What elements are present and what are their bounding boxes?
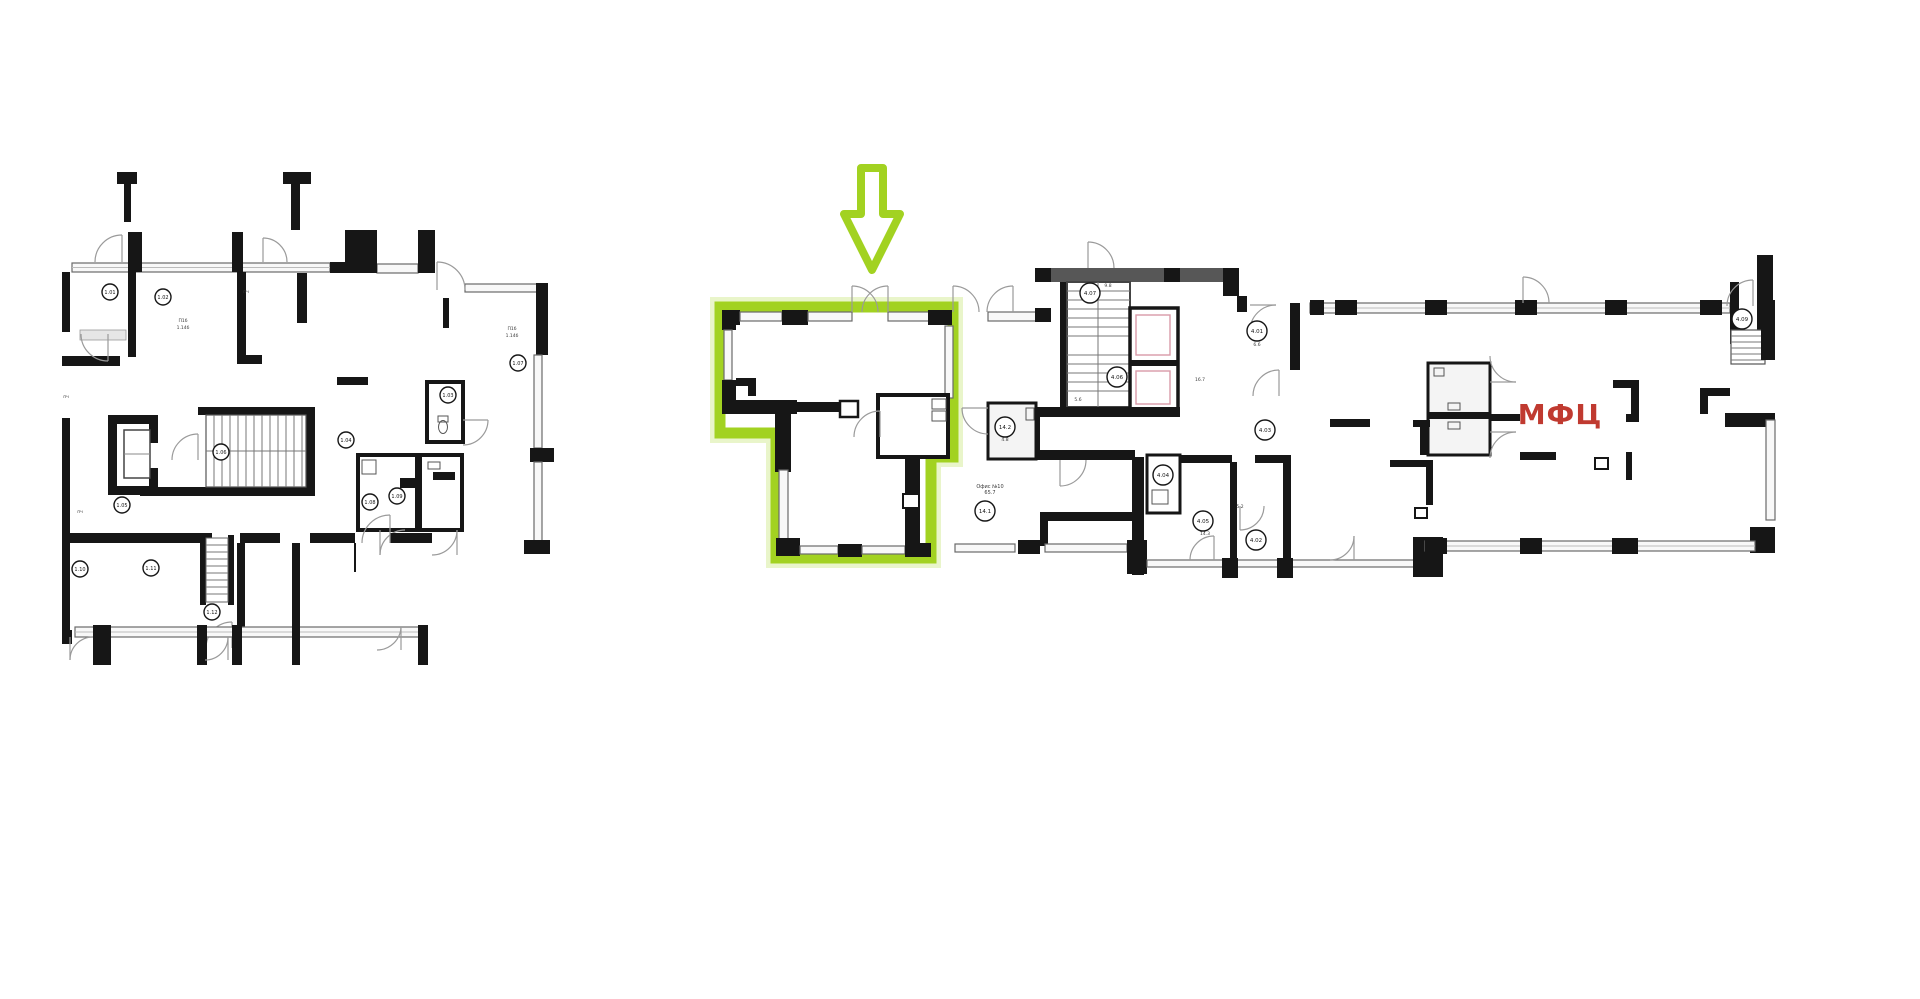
room-label-text: 4.01 xyxy=(1251,329,1263,335)
room-label-text: 4.03 xyxy=(1259,428,1272,434)
plan-note-text: 5.6 xyxy=(1074,397,1081,403)
elevator xyxy=(108,415,158,495)
room-label-text: 4.07 xyxy=(1084,291,1097,297)
room-label-text: 1.11 xyxy=(145,566,156,572)
room-label-text: 14.1 xyxy=(979,509,991,515)
down-arrow-icon xyxy=(844,168,900,270)
floor-plan-page: 1.011.021.031.041.051.061.071.081.091.10… xyxy=(0,0,1920,999)
plan-note-text: пч xyxy=(63,395,69,400)
plan-note-text: П1б xyxy=(178,318,187,324)
mfc-label: МФЦ xyxy=(1518,398,1603,431)
plan-note-text: 16.7 xyxy=(1195,377,1205,383)
room-label-text: 1.12 xyxy=(206,610,217,616)
floor-plan-canvas: 1.011.021.031.041.051.061.071.081.091.10… xyxy=(0,0,1920,999)
plan-note-text: пч xyxy=(77,510,83,515)
office-note-line2: 65.7 xyxy=(984,490,995,496)
room-label-text: 1.09 xyxy=(391,494,402,500)
room-label-text: 4.05 xyxy=(1197,519,1210,525)
plan-note-text: 4.8 xyxy=(1001,437,1008,443)
room-label-text: 1.05 xyxy=(116,503,127,509)
room-label-text: 1.01 xyxy=(104,290,115,296)
plan-note-text: пч xyxy=(243,290,249,295)
mfc-hall: МФЦ xyxy=(1310,255,1775,554)
room-label-text: 1.10 xyxy=(74,567,85,573)
room-label-text: 4.02 xyxy=(1250,538,1262,544)
mfc-office-rooms xyxy=(1390,356,1520,505)
plan-note-text: 6.6 xyxy=(1253,342,1260,348)
plan-note-text: 9.8 xyxy=(1104,283,1111,289)
room-label-text: 4.04 xyxy=(1157,473,1170,479)
room-label-text: 4.09 xyxy=(1736,317,1749,323)
room-label-text: 1.08 xyxy=(364,500,375,506)
right-floor-plan: МФЦ 4.074.064.014.0314.24.044.054.0214.1… xyxy=(720,168,1775,578)
plan-note-text: П1б xyxy=(507,326,516,332)
window-band-bottom xyxy=(75,627,425,637)
plan-note-text: 1.14б xyxy=(177,325,190,331)
plan-note-text: 14.3 xyxy=(1200,531,1210,537)
room-label-text: 1.04 xyxy=(340,438,351,444)
room-label-text: 1.07 xyxy=(512,361,523,367)
left-floor-plan: 1.011.021.031.041.051.061.071.081.091.10… xyxy=(62,172,554,665)
room-label-text: 1.06 xyxy=(215,450,226,456)
room-label-text: 1.03 xyxy=(442,393,453,399)
room-label-text: 4.06 xyxy=(1111,375,1124,381)
room-label-text: 14.2 xyxy=(999,425,1011,431)
room-label-text: 1.02 xyxy=(157,295,168,301)
plan-note-text: 1.14б xyxy=(506,333,519,339)
bathroom xyxy=(427,382,488,445)
core-stair-elevators xyxy=(1032,242,1180,486)
plan-note-text: 5.2 xyxy=(1236,504,1243,510)
